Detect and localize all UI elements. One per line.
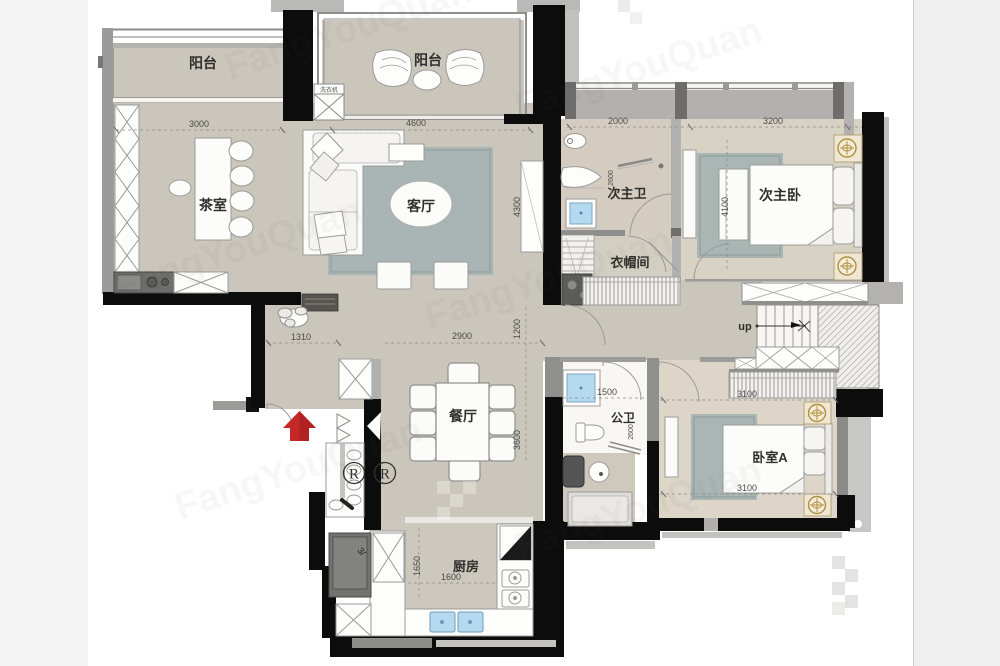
svg-text:1310: 1310 bbox=[291, 332, 311, 342]
svg-text:阳台: 阳台 bbox=[189, 55, 217, 71]
svg-text:1650: 1650 bbox=[412, 556, 422, 576]
svg-text:1200: 1200 bbox=[512, 319, 522, 339]
svg-text:茶室: 茶室 bbox=[198, 197, 227, 213]
svg-text:2600: 2600 bbox=[608, 170, 615, 186]
svg-text:2600: 2600 bbox=[628, 424, 635, 440]
svg-text:厨房: 厨房 bbox=[453, 559, 479, 574]
svg-text:2900: 2900 bbox=[452, 331, 472, 341]
svg-text:1500: 1500 bbox=[597, 387, 617, 397]
svg-text:3000: 3000 bbox=[189, 119, 209, 129]
svg-text:4600: 4600 bbox=[406, 118, 426, 128]
svg-text:次主卫: 次主卫 bbox=[607, 186, 646, 201]
svg-text:3600: 3600 bbox=[512, 430, 522, 450]
svg-text:餐厅: 餐厅 bbox=[448, 408, 477, 424]
svg-text:洗衣机: 洗衣机 bbox=[320, 86, 338, 94]
svg-text:次主卧: 次主卧 bbox=[759, 187, 801, 203]
svg-text:2000: 2000 bbox=[608, 116, 628, 126]
svg-text:公卫: 公卫 bbox=[611, 411, 635, 425]
svg-text:4300: 4300 bbox=[512, 197, 522, 217]
svg-text:客厅: 客厅 bbox=[406, 198, 435, 214]
svg-text:R: R bbox=[380, 467, 390, 483]
svg-text:up: up bbox=[738, 321, 752, 333]
svg-text:阳台: 阳台 bbox=[414, 52, 442, 68]
svg-text:3100: 3100 bbox=[737, 389, 757, 399]
svg-text:4100: 4100 bbox=[720, 197, 730, 217]
svg-text:3200: 3200 bbox=[763, 116, 783, 126]
